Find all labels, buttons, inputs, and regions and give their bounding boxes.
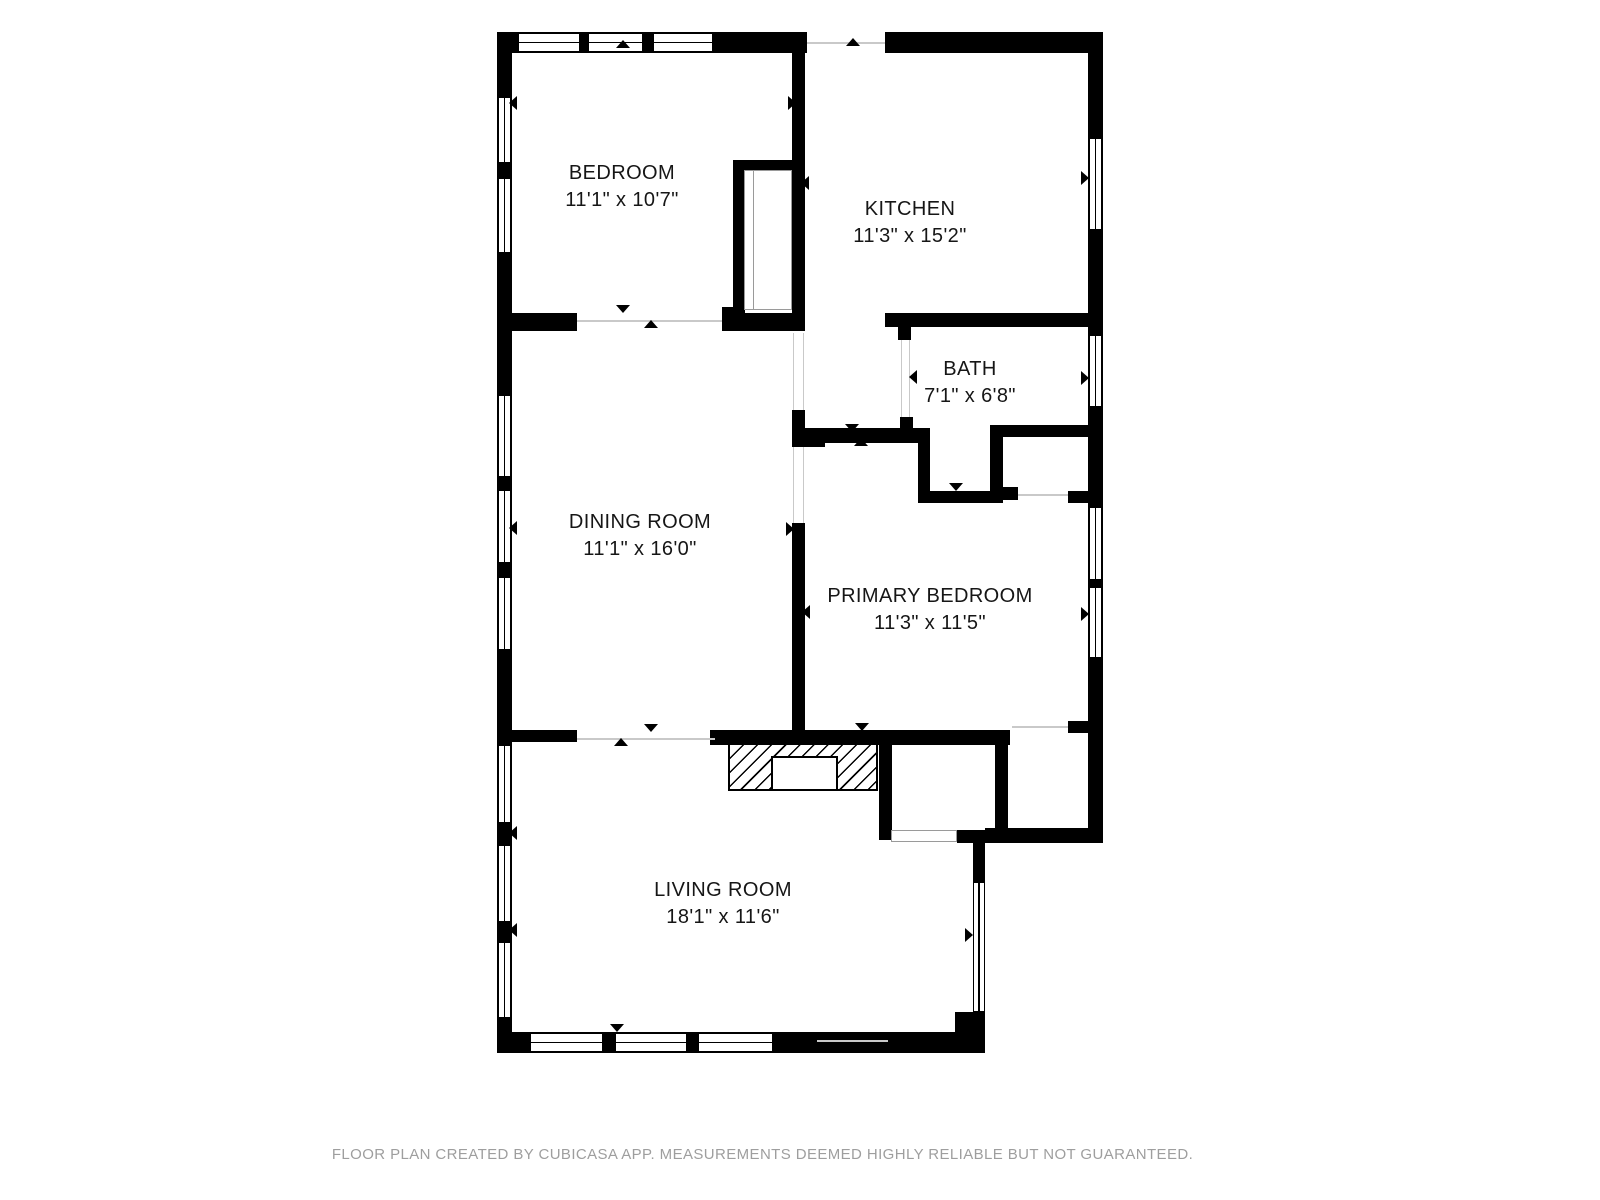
window-glass-line (504, 490, 506, 563)
door-opening-line (1012, 726, 1068, 728)
room-label-bedroom: BEDROOM11'1" x 10'7" (565, 160, 678, 214)
opening-direction-arrow-left (909, 370, 917, 384)
door-opening-line (803, 333, 804, 410)
wall-segment (879, 743, 892, 840)
window (698, 1033, 773, 1052)
footer-disclaimer: FLOOR PLAN CREATED BY CUBICASA APP. MEAS… (0, 1146, 1525, 1163)
window (1089, 335, 1102, 407)
window (653, 33, 713, 52)
window-glass-line (530, 1042, 603, 1044)
opening-direction-arrow-down (644, 724, 658, 732)
closet-door-outline (753, 170, 754, 310)
wall-segment (957, 830, 1000, 843)
window-glass-line (504, 745, 506, 823)
closet-door-outline (744, 170, 792, 310)
window (973, 882, 985, 1012)
room-label-bath: BATH7'1" x 6'8" (924, 356, 1016, 410)
window (615, 1033, 687, 1052)
room-name: PRIMARY BEDROOM (827, 583, 1032, 610)
wall-segment (985, 828, 1103, 843)
window-glass-line (653, 42, 713, 44)
window-glass-line (518, 42, 580, 44)
door-opening-line (793, 333, 794, 410)
fireplace (728, 743, 878, 791)
door-opening-line (901, 340, 902, 417)
opening-direction-arrow-down (616, 305, 630, 313)
window (498, 178, 511, 253)
window-glass-line (504, 942, 506, 1018)
room-dimensions: 11'1" x 16'0" (569, 536, 711, 563)
window-glass-line (1095, 138, 1097, 230)
room-dimensions: 11'3" x 11'5" (827, 610, 1032, 637)
door-opening-line (793, 447, 794, 523)
room-dimensions: 11'1" x 10'7" (565, 187, 678, 214)
wall-segment (722, 313, 805, 331)
wall-segment (512, 313, 577, 331)
opening-direction-arrow-right (1081, 371, 1089, 385)
wall-segment (990, 425, 1103, 437)
window-glass-line (504, 395, 506, 477)
window (498, 577, 511, 650)
wall-segment (792, 53, 805, 331)
window (498, 395, 511, 477)
room-name: LIVING ROOM (654, 877, 792, 904)
opening-direction-arrow-left (509, 923, 517, 937)
wall-segment (497, 730, 577, 742)
window (498, 845, 511, 922)
window-glass-line (1095, 587, 1097, 658)
window-glass-line (698, 1042, 773, 1044)
room-name: BEDROOM (565, 160, 678, 187)
opening-direction-arrow-left (801, 176, 809, 190)
opening-direction-arrow-up (616, 40, 630, 48)
window-glass-line (504, 178, 506, 253)
window (1089, 507, 1102, 580)
room-dimensions: 11'3" x 15'2" (853, 223, 966, 250)
window-glass-line (504, 97, 506, 163)
door-opening-line (577, 738, 715, 740)
opening-direction-arrow-up (614, 738, 628, 746)
opening-direction-arrow-right (965, 928, 973, 942)
opening-direction-arrow-down (610, 1024, 624, 1032)
opening-direction-arrow-right (1081, 607, 1089, 621)
wall-segment (792, 523, 805, 733)
window-glass-line (978, 882, 980, 1012)
room-dimensions: 7'1" x 6'8" (924, 383, 1016, 410)
wall-segment (1068, 721, 1103, 733)
wall-segment (955, 1012, 985, 1053)
opening-direction-arrow-down (855, 723, 869, 731)
window (498, 745, 511, 823)
opening-direction-arrow-left (509, 96, 517, 110)
window (530, 1033, 603, 1052)
room-dimensions: 18'1" x 11'6" (654, 904, 792, 931)
door-opening-line (803, 447, 804, 523)
opening-direction-arrow-up (644, 320, 658, 328)
wall-segment (885, 313, 1103, 327)
room-name: BATH (924, 356, 1016, 383)
opening-direction-arrow-up (930, 314, 944, 322)
opening-direction-arrow-down (949, 483, 963, 491)
window (1089, 138, 1102, 230)
window-glass-line (615, 1042, 687, 1044)
door-opening-line (817, 1040, 888, 1042)
opening-direction-arrow-right (1081, 171, 1089, 185)
wall-segment (1068, 491, 1088, 503)
opening-direction-arrow-left (509, 521, 517, 535)
room-label-primary-bedroom: PRIMARY BEDROOM11'3" x 11'5" (827, 583, 1032, 637)
opening-direction-arrow-up (846, 38, 860, 46)
window (518, 33, 580, 52)
wall-segment (995, 744, 1008, 830)
window (498, 942, 511, 1018)
window-glass-line (504, 577, 506, 650)
room-name: KITCHEN (853, 196, 966, 223)
room-label-living-room: LIVING ROOM18'1" x 11'6" (654, 877, 792, 931)
window (1089, 587, 1102, 658)
opening-direction-arrow-up (854, 438, 868, 446)
wall-segment (898, 313, 911, 340)
opening-direction-arrow-down (845, 424, 859, 432)
closet-door-outline (891, 830, 957, 842)
window-glass-line (504, 845, 506, 922)
opening-direction-arrow-right (788, 96, 796, 110)
window-glass-line (1095, 507, 1097, 580)
fireplace-firebox (771, 756, 838, 791)
room-label-kitchen: KITCHEN11'3" x 15'2" (853, 196, 966, 250)
opening-direction-arrow-left (802, 605, 810, 619)
opening-direction-arrow-right (786, 522, 794, 536)
room-label-dining-room: DINING ROOM11'1" x 16'0" (569, 509, 711, 563)
floor-plan-canvas: BEDROOM11'1" x 10'7"KITCHEN11'3" x 15'2"… (0, 0, 1600, 1200)
door-opening-line (1018, 494, 1068, 496)
opening-direction-arrow-left (509, 826, 517, 840)
wall-segment (885, 32, 1103, 53)
window-glass-line (1095, 335, 1097, 407)
wall-segment (1000, 487, 1018, 500)
room-name: DINING ROOM (569, 509, 711, 536)
